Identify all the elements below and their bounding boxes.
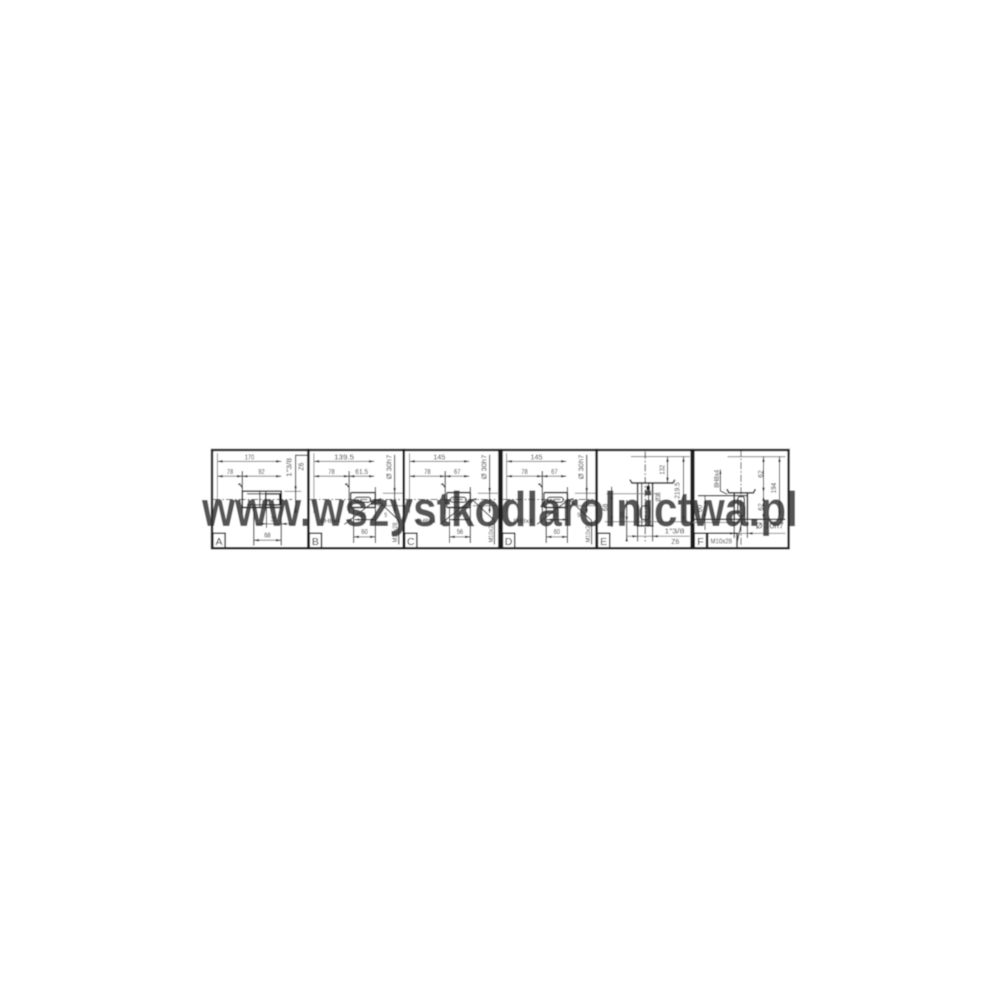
svg-text:D: D — [505, 536, 513, 548]
svg-text:78: 78 — [521, 467, 527, 476]
svg-text:78: 78 — [424, 467, 430, 476]
svg-text:Z6: Z6 — [296, 463, 305, 471]
svg-text:78: 78 — [227, 467, 233, 476]
svg-text:Ø 30h7: Ø 30h7 — [384, 455, 393, 480]
svg-text:1”3/8: 1”3/8 — [285, 458, 294, 477]
svg-text:139.5: 139.5 — [334, 452, 354, 461]
svg-text:Z6: Z6 — [671, 537, 679, 546]
svg-text:M10x28: M10x28 — [710, 537, 732, 546]
svg-text:132: 132 — [657, 465, 666, 475]
svg-text:E: E — [600, 536, 607, 548]
svg-text:61.5: 61.5 — [355, 467, 368, 476]
svg-text:B: B — [312, 536, 319, 548]
svg-text:Ø 30h7: Ø 30h7 — [576, 455, 585, 480]
svg-text:www.wszystkodlarolnictwa.pl: www.wszystkodlarolnictwa.pl — [201, 483, 798, 537]
svg-text:Ø 30h7: Ø 30h7 — [479, 455, 488, 480]
svg-text:A: A — [215, 536, 222, 548]
svg-text:78: 78 — [328, 467, 334, 476]
svg-text:67: 67 — [454, 467, 460, 476]
svg-text:145: 145 — [531, 452, 543, 461]
svg-text:C: C — [407, 536, 415, 548]
svg-text:62: 62 — [756, 470, 765, 477]
svg-text:170: 170 — [245, 452, 255, 461]
svg-text:145: 145 — [433, 452, 445, 461]
svg-text:F: F — [697, 536, 703, 548]
svg-text:92: 92 — [258, 467, 264, 476]
svg-text:67: 67 — [551, 467, 557, 476]
